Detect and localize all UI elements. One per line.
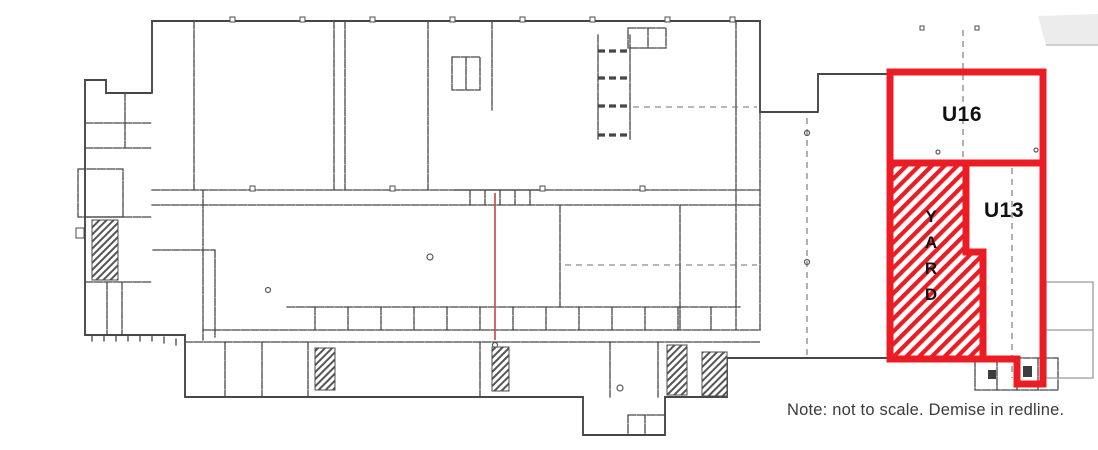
unit-label-u16: U16	[942, 104, 982, 125]
service-bay	[598, 35, 630, 140]
scan-corner-artifact	[1038, 14, 1098, 45]
yard-letter: A	[925, 234, 937, 251]
floorplan-canvas: U16 U13 Y A R D Note: not to scale. Demi…	[0, 0, 1098, 450]
building-outer-wall	[85, 21, 888, 435]
corridor-walls	[152, 190, 760, 205]
scale-note: Note: not to scale. Demise in redline.	[787, 401, 1064, 420]
adjacent-structure	[1046, 282, 1093, 378]
yard-letter: D	[925, 286, 937, 303]
top-small-rooms	[452, 28, 666, 90]
mid-rooms-band	[203, 307, 760, 330]
yard-label: Y A R D	[918, 208, 944, 303]
left-annex	[76, 93, 176, 345]
corridor-rooms	[455, 190, 545, 205]
top-hall-partitions	[194, 21, 760, 330]
yard-letter: R	[925, 260, 937, 277]
bottom-protrusion-rooms	[628, 415, 665, 435]
door-marks	[230, 17, 979, 191]
yard-letter: Y	[925, 208, 936, 225]
unit-label-u13: U13	[984, 200, 1024, 221]
office-strip	[185, 342, 760, 397]
